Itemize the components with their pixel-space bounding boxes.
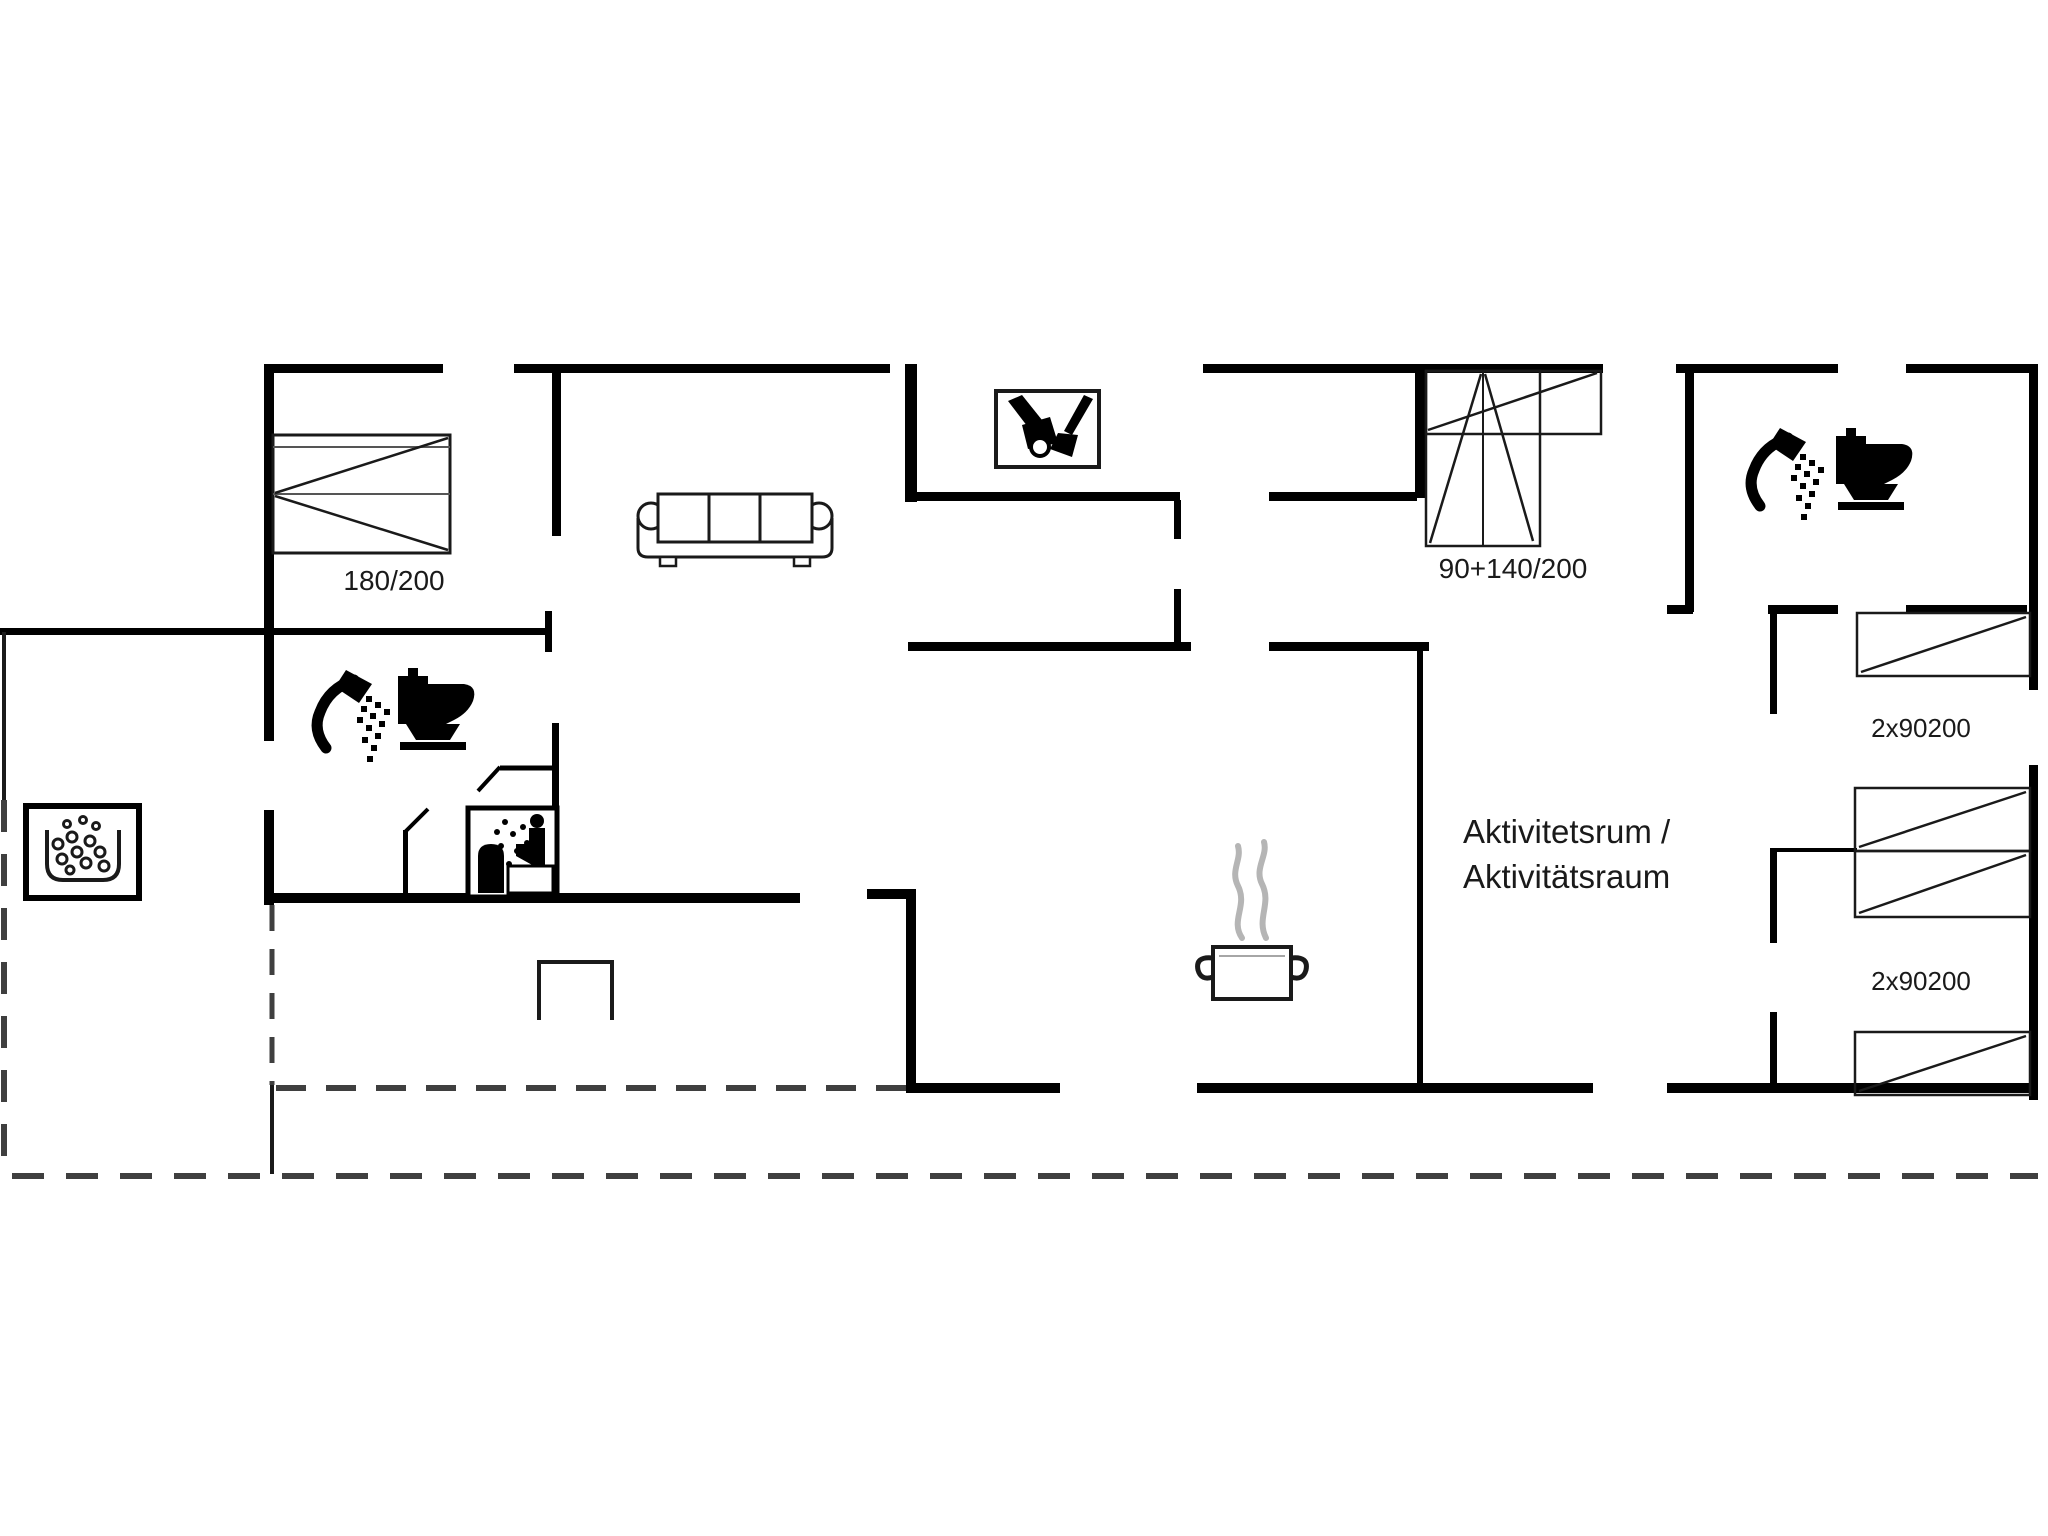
whirlpool-icon <box>26 806 139 898</box>
room-label-activity: Aktivitetsrum / Aktivitätsraum <box>1463 813 1671 895</box>
bed-size-label-2x90200-top: 2x90200 <box>1871 713 1971 743</box>
sauna-icon <box>468 808 557 897</box>
bed-size-label-2x90200-bottom: 2x90200 <box>1871 966 1971 996</box>
shower-icon <box>317 670 390 762</box>
double-bed-icon <box>273 435 450 553</box>
cleaning-cupboard-icon <box>996 391 1099 467</box>
hearth-icon <box>539 962 612 1020</box>
outer-walls <box>264 364 2038 1100</box>
sofa-icon <box>638 494 832 566</box>
floor-plan-page: 180/200 90+140/200 <box>0 0 2048 1536</box>
toilet-icon <box>398 668 474 750</box>
bed-size-label-180-200: 180/200 <box>343 565 444 596</box>
interior-walls <box>0 364 2027 1093</box>
toilet-icon <box>1836 428 1912 510</box>
bed-size-label-90-140-200: 90+140/200 <box>1439 553 1588 584</box>
combo-bed-icon <box>1426 371 1601 546</box>
activity-room-label-line2: Aktivitätsraum <box>1463 858 1670 895</box>
single-bed-icon <box>1857 613 2030 676</box>
floor-plan-svg: 180/200 90+140/200 <box>0 0 2048 1536</box>
activity-room-label-line1: Aktivitetsrum / <box>1463 813 1671 850</box>
cooking-pot-icon <box>1198 842 1307 999</box>
terrace-dashed-lines <box>4 632 2038 1176</box>
single-bed-icon <box>1855 788 2030 917</box>
shower-icon <box>1751 428 1824 520</box>
